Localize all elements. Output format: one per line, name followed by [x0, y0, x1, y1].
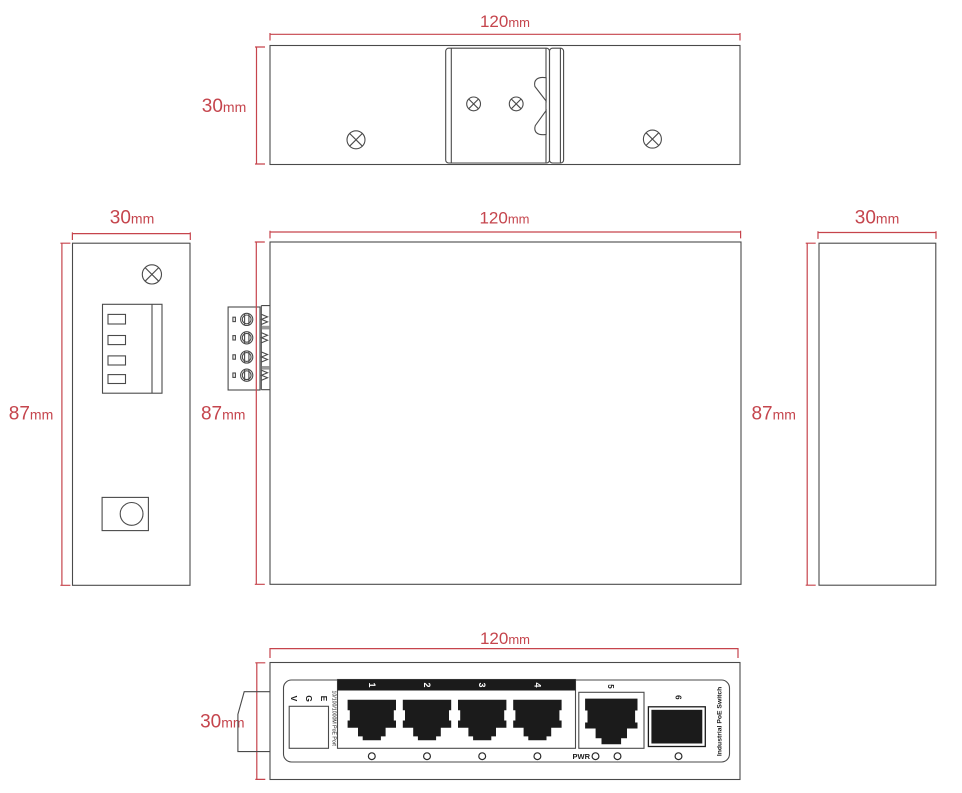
svg-text:120mm: 120mm	[480, 629, 530, 648]
svg-text:PWR: PWR	[573, 752, 591, 761]
svg-text:G: G	[304, 695, 314, 702]
svg-text:4: 4	[532, 682, 542, 687]
svg-text:10/100/1000M PoE Port: 10/100/1000M PoE Port	[331, 691, 337, 747]
svg-text:Industrial PoE Switch: Industrial PoE Switch	[717, 687, 724, 757]
svg-text:87mm: 87mm	[201, 404, 245, 425]
svg-text:2: 2	[422, 682, 432, 687]
svg-text:6: 6	[674, 695, 683, 700]
svg-text:30mm: 30mm	[202, 96, 246, 117]
svg-text:30mm: 30mm	[110, 207, 154, 228]
svg-text:120mm: 120mm	[480, 12, 530, 31]
svg-text:E: E	[319, 696, 329, 702]
svg-text:87mm: 87mm	[751, 404, 795, 425]
svg-text:1: 1	[367, 682, 377, 687]
svg-text:5: 5	[606, 684, 615, 689]
svg-text:120mm: 120mm	[479, 208, 529, 227]
svg-text:87mm: 87mm	[9, 404, 53, 425]
svg-text:V: V	[289, 696, 299, 702]
svg-text:30mm: 30mm	[855, 207, 899, 228]
svg-text:3: 3	[477, 682, 487, 687]
